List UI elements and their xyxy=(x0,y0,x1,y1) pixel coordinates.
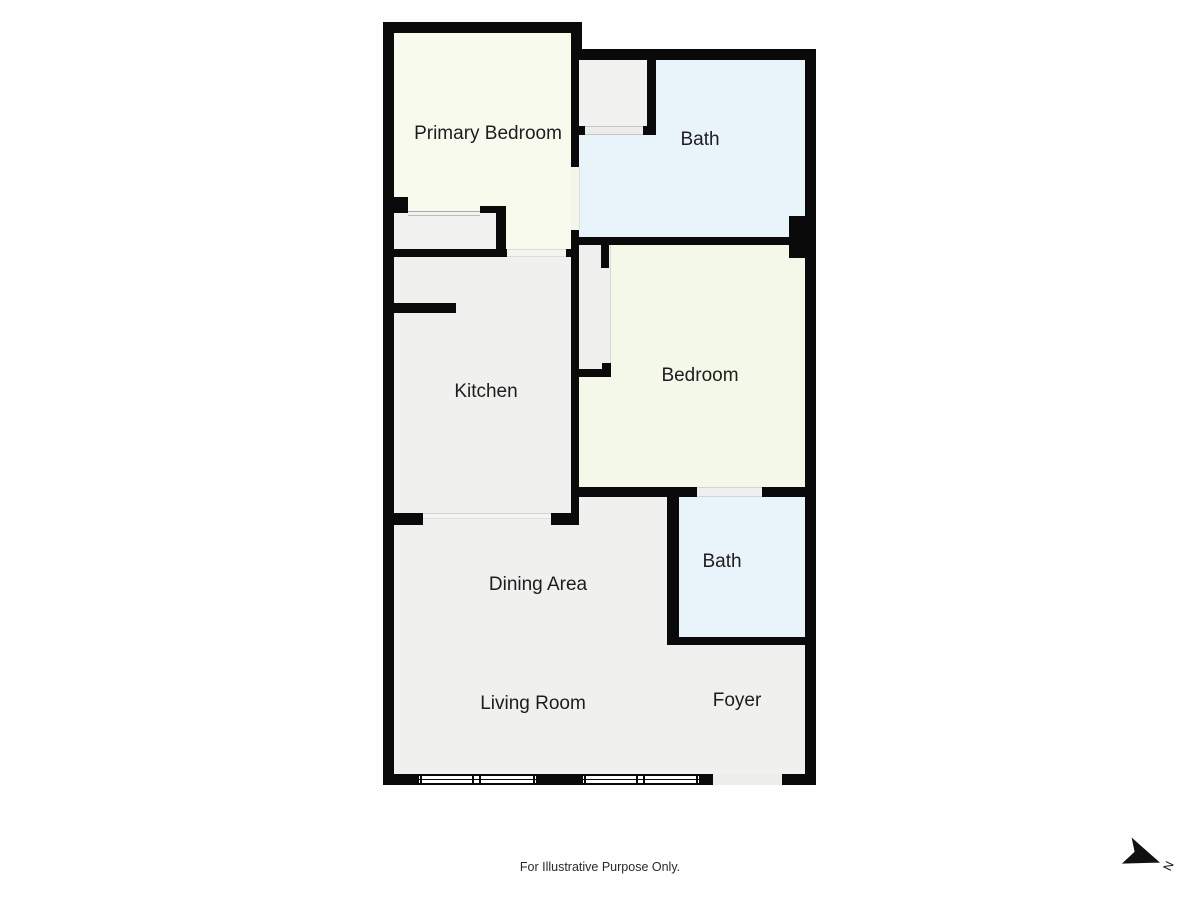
svg-text:N: N xyxy=(1160,859,1176,873)
